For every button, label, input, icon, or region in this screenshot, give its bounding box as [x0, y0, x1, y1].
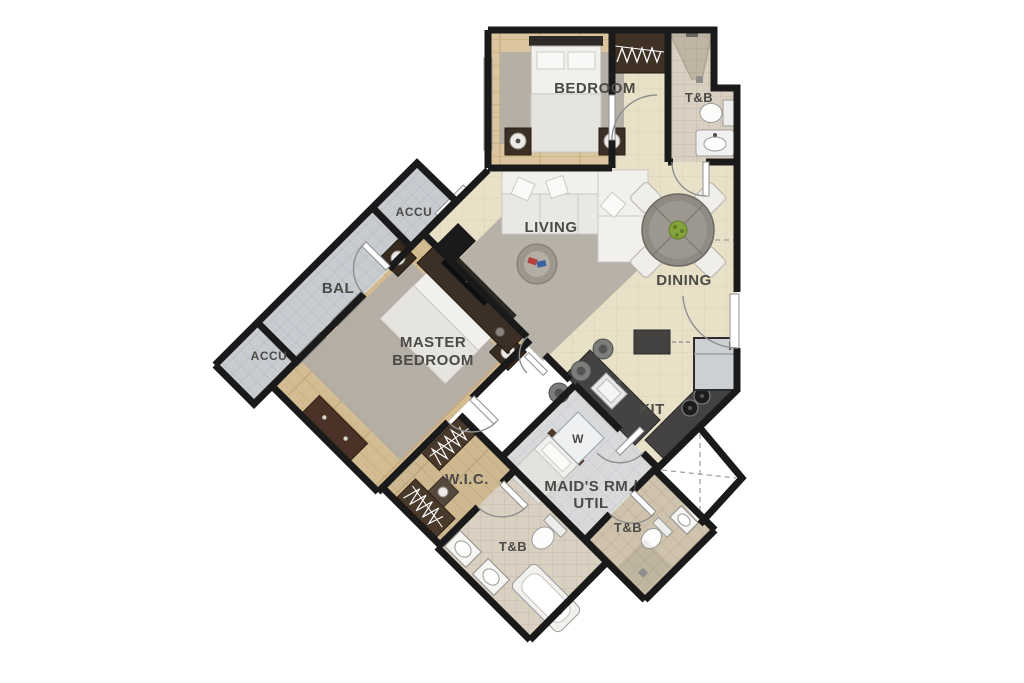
label-bath-top: T&B: [685, 90, 713, 105]
label-maids-line2: UTIL: [573, 495, 608, 512]
label-wic: W.I.C.: [445, 471, 489, 488]
top-bath-sink: [696, 130, 734, 156]
label-master-line2: BEDROOM: [392, 352, 474, 369]
label-maids-line1: MAID'S RM./: [544, 478, 638, 495]
bedroom-nightstand-left: [505, 128, 531, 155]
label-accu-lower: ACCU: [251, 349, 288, 363]
floor-plan-page: BEDROOM T&B LIVING DINING BAL ACCU ACCU …: [0, 0, 1024, 683]
label-bedroom: BEDROOM: [554, 80, 636, 97]
label-dining: DINING: [656, 272, 712, 289]
floor-plan: BEDROOM T&B LIVING DINING BAL ACCU ACCU …: [0, 0, 1024, 683]
label-bath-common: T&B: [614, 520, 642, 535]
label-balcony: BAL: [322, 280, 354, 297]
label-bath-master: T&B: [499, 539, 527, 554]
label-kitchen: KIT: [639, 401, 665, 418]
label-living: LIVING: [524, 219, 577, 236]
bedroom-wardrobe: [613, 33, 666, 73]
dining-set: [629, 181, 727, 279]
label-master-line1: MASTER: [400, 334, 466, 351]
label-washer: W: [572, 432, 584, 446]
living-coffee-table: [517, 244, 557, 284]
label-accu-upper: ACCU: [396, 205, 433, 219]
